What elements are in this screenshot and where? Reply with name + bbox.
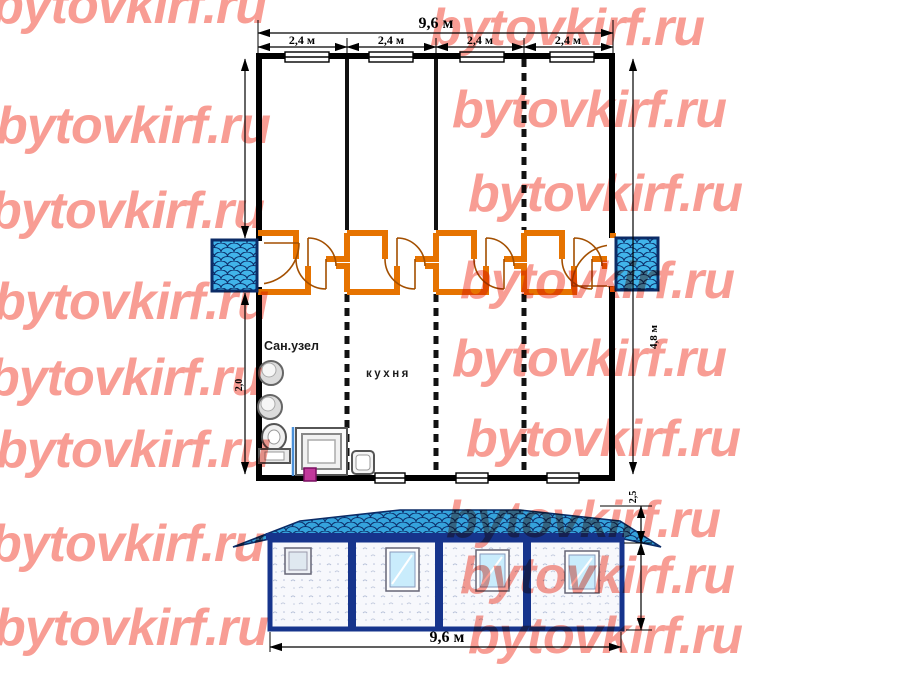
plan-windows	[285, 52, 594, 483]
entrance-porch-left	[212, 240, 257, 291]
module-dim-3: 2,4 м	[467, 33, 493, 47]
floor-plan: Сан.узел кухня 9,6 м 2,4 м 2,4 м 2,4 м 2…	[212, 15, 660, 483]
module-dim-2: 2,4 м	[378, 33, 404, 47]
window	[476, 550, 509, 591]
bathroom-fixtures	[258, 361, 347, 481]
module-dim-4: 2,4 м	[555, 33, 581, 47]
window	[565, 551, 599, 593]
washbasin-symbol	[258, 395, 282, 419]
module-dim-1: 2,4 м	[289, 33, 315, 47]
toilet-symbol	[259, 424, 290, 463]
kitchen-sink-symbol	[352, 451, 374, 474]
elevation-view: 9,6 м 2,5	[233, 491, 661, 652]
washbasin-symbol	[259, 361, 283, 385]
window	[386, 548, 419, 591]
entrance-porch-right	[616, 238, 658, 290]
technical-drawing: Сан.узел кухня 9,6 м 2,4 м 2,4 м 2,4 м 2…	[0, 0, 900, 675]
shower-cabin-symbol	[293, 427, 347, 476]
drawing-canvas: Сан.узел кухня 9,6 м 2,4 м 2,4 м 2,4 м 2…	[0, 0, 900, 675]
elevation-length-dim: 9,6 м	[430, 629, 465, 646]
kitchen-label: кухня	[366, 368, 411, 380]
corridor-walls	[258, 233, 613, 292]
bathroom-label: Сан.узел	[264, 339, 319, 353]
plan-total-length-dim: 9,6 м	[419, 15, 454, 32]
window	[285, 548, 311, 574]
plan-width-dim: 4,8 м	[648, 325, 660, 350]
elevation-height-dim: 2,5	[628, 491, 639, 504]
room-depth-dim: 2,0	[234, 379, 245, 392]
drain-symbol	[304, 468, 316, 481]
